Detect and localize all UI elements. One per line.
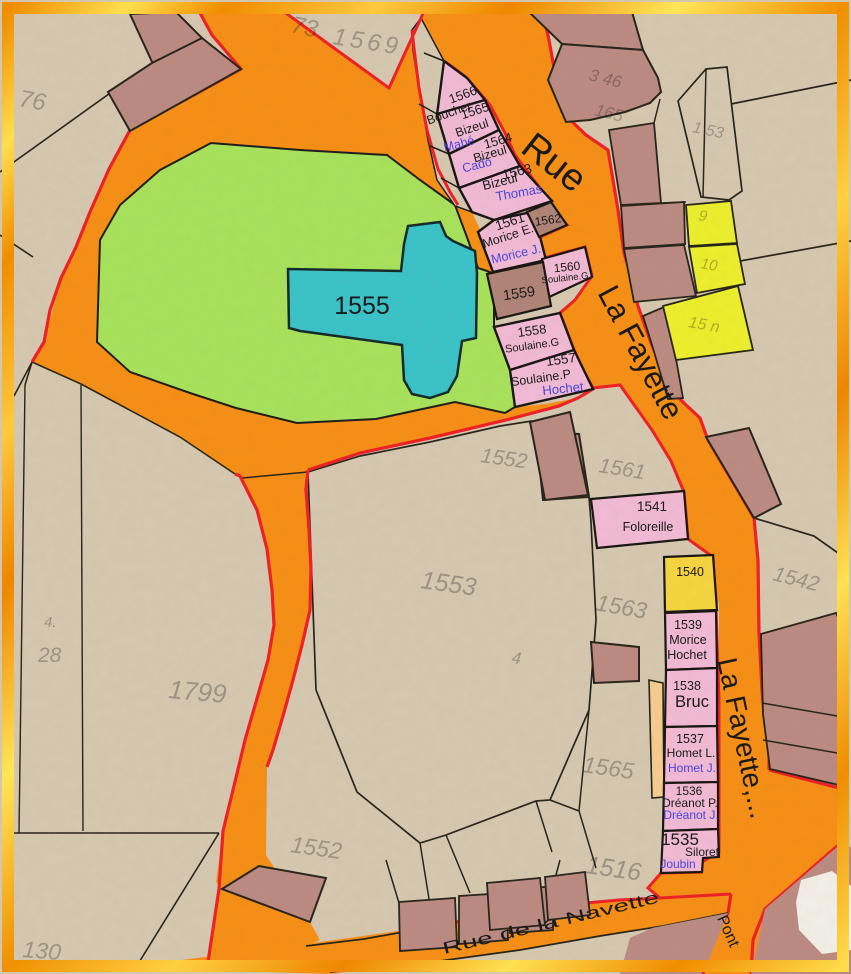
svg-text:Bruc: Bruc xyxy=(675,693,709,711)
svg-text:1555: 1555 xyxy=(334,292,390,320)
svg-text:1541: 1541 xyxy=(637,499,667,514)
svg-text:1538: 1538 xyxy=(673,679,701,693)
svg-text:76: 76 xyxy=(17,85,49,116)
svg-text:Homet L.: Homet L. xyxy=(667,746,716,760)
svg-text:Homet J.: Homet J. xyxy=(668,761,716,775)
svg-text:Morice: Morice xyxy=(669,633,707,647)
svg-text:Joubin: Joubin xyxy=(660,857,695,871)
svg-text:1799: 1799 xyxy=(167,674,227,709)
svg-text:Hochet: Hochet xyxy=(667,648,707,662)
svg-text:1539: 1539 xyxy=(674,618,702,632)
svg-text:1540: 1540 xyxy=(676,565,704,579)
svg-text:Foloreille: Foloreille xyxy=(623,520,674,534)
svg-text:4.: 4. xyxy=(44,614,57,631)
svg-text:28: 28 xyxy=(37,644,62,667)
svg-text:1537: 1537 xyxy=(676,732,704,746)
svg-text:Dréanot J.: Dréanot J. xyxy=(663,808,718,822)
